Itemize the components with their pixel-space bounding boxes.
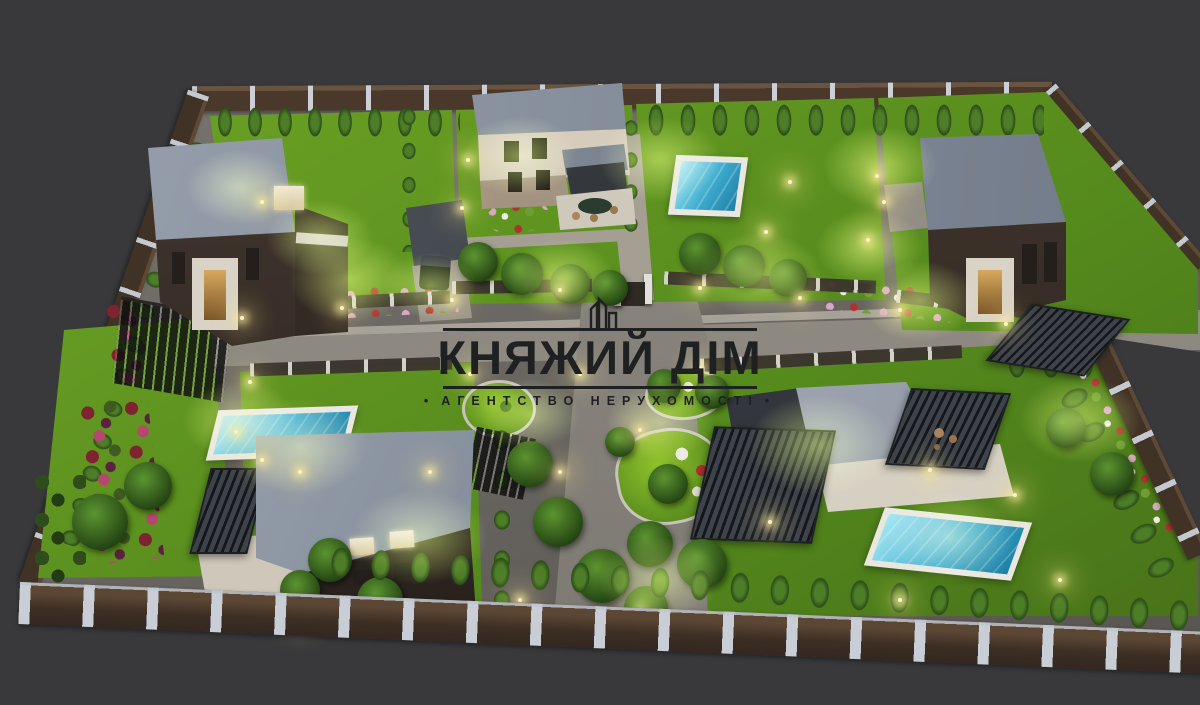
tree bbox=[648, 464, 688, 504]
street-lamp bbox=[466, 158, 470, 162]
tree bbox=[1046, 408, 1086, 448]
street-lamp bbox=[898, 598, 902, 602]
window bbox=[504, 141, 519, 162]
street-lamp bbox=[428, 470, 432, 474]
street-lamp bbox=[788, 180, 792, 184]
chairs bbox=[572, 212, 580, 220]
street-lamp bbox=[518, 598, 522, 602]
street-lamp bbox=[298, 470, 302, 474]
pool-water bbox=[675, 161, 742, 211]
buildings-logo-icon bbox=[576, 294, 624, 332]
tree bbox=[723, 245, 765, 287]
dining-table bbox=[578, 198, 612, 214]
pergola bbox=[690, 426, 836, 543]
window bbox=[1044, 242, 1057, 282]
tree bbox=[605, 427, 635, 457]
street-lamp bbox=[875, 174, 879, 178]
cypress-hedge bbox=[210, 94, 460, 146]
tree bbox=[769, 259, 807, 297]
watermark-subtitle: • АГЕНТСТВО НЕРУХОМОСТІ • bbox=[424, 394, 776, 408]
tree bbox=[533, 497, 583, 547]
car bbox=[419, 255, 451, 291]
street-lamp bbox=[638, 428, 642, 432]
window bbox=[1022, 244, 1037, 284]
street-lamp bbox=[928, 468, 932, 472]
tree bbox=[507, 441, 553, 487]
street-lamp bbox=[768, 520, 772, 524]
street-lamp bbox=[866, 238, 870, 242]
pool-water bbox=[872, 514, 1024, 575]
bullet: • bbox=[424, 394, 435, 408]
watermark-divider-bottom bbox=[443, 386, 757, 389]
swimming-pool bbox=[668, 155, 748, 217]
watermark-title: КНЯЖИЙ ДІМ bbox=[437, 332, 762, 384]
window bbox=[172, 252, 185, 284]
window bbox=[508, 172, 522, 192]
street-lamp bbox=[1013, 493, 1017, 497]
street-lamp bbox=[260, 458, 264, 462]
street-lamp bbox=[460, 206, 464, 210]
tree bbox=[124, 462, 172, 510]
tree bbox=[501, 253, 543, 295]
street-lamp bbox=[882, 200, 886, 204]
window bbox=[536, 170, 550, 190]
street-lamp bbox=[764, 230, 768, 234]
watermark-subtitle-text: АГЕНТСТВО НЕРУХОМОСТІ bbox=[441, 394, 758, 408]
tree bbox=[458, 242, 498, 282]
tree bbox=[1090, 452, 1134, 496]
street-lamp bbox=[558, 288, 562, 292]
tree bbox=[679, 233, 721, 275]
street-lamp bbox=[1058, 578, 1062, 582]
street-lamp bbox=[234, 430, 238, 434]
street-lamp bbox=[558, 470, 562, 474]
estate-render: КНЯЖИЙ ДІМ • АГЕНТСТВО НЕРУХОМОСТІ • bbox=[0, 0, 1200, 705]
tree bbox=[72, 494, 128, 550]
bullet: • bbox=[765, 394, 776, 408]
street-lamp bbox=[260, 200, 264, 204]
window bbox=[246, 248, 259, 280]
window bbox=[532, 138, 547, 159]
lit-window bbox=[274, 186, 304, 210]
street-lamp bbox=[698, 286, 702, 290]
outdoor-furniture bbox=[934, 428, 944, 438]
watermark: КНЯЖИЙ ДІМ • АГЕНТСТВО НЕРУХОМОСТІ • bbox=[0, 294, 1200, 408]
